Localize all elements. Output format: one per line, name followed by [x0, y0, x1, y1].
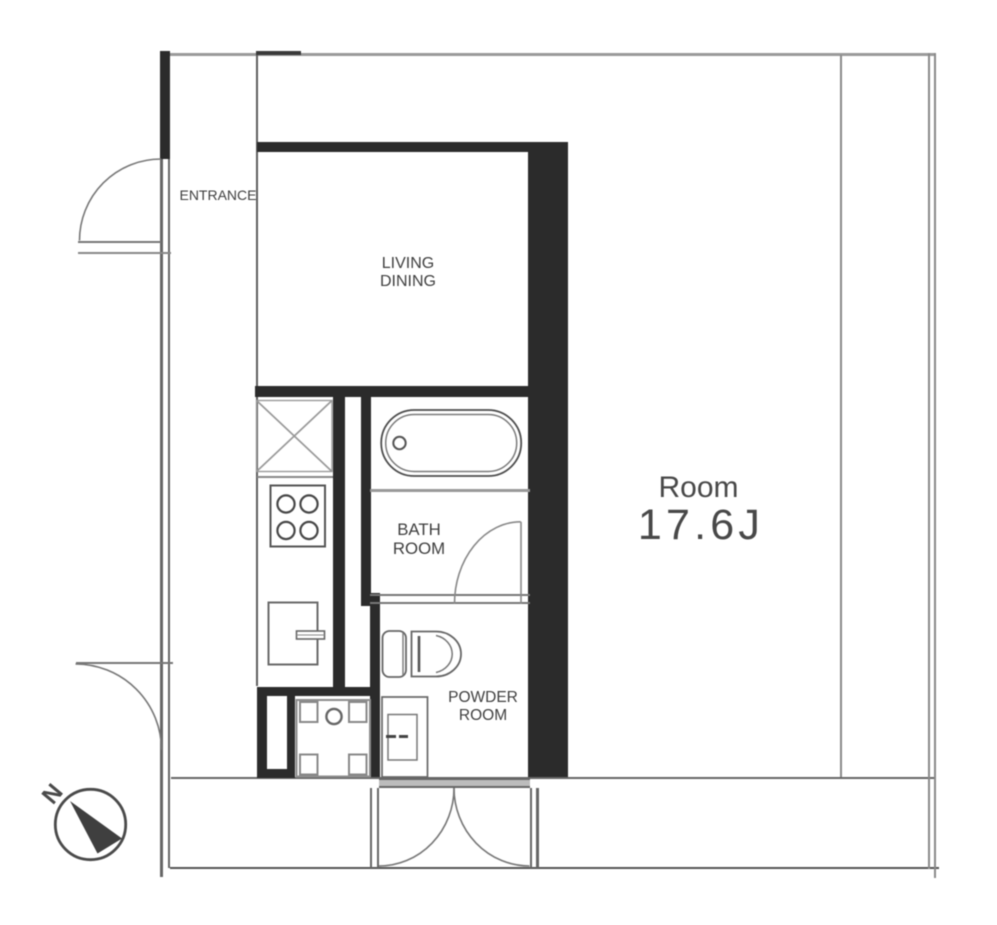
svg-text:N: N — [37, 779, 69, 810]
